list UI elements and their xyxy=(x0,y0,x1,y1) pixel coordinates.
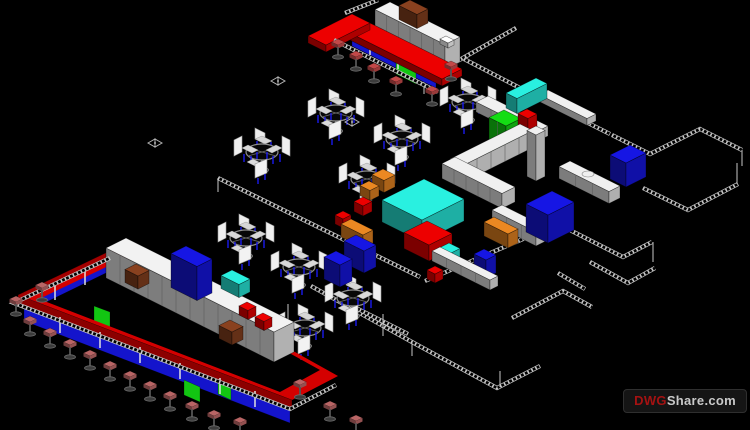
wall-far-right-mid xyxy=(643,184,738,210)
dining-table-set xyxy=(308,89,364,145)
cad-canvas[interactable]: DWGShare.com xyxy=(0,0,750,430)
isometric-cad-drawing xyxy=(0,0,750,430)
sink-basin xyxy=(582,171,594,177)
watermark-prefix: DWG xyxy=(634,393,667,408)
dining-table-set xyxy=(234,128,290,184)
dining-table-set xyxy=(374,115,430,171)
watermark: DWGShare.com xyxy=(623,389,747,413)
watermark-suffix: Share.com xyxy=(667,393,736,408)
kitchen-column xyxy=(527,131,536,182)
column-diamond-marker xyxy=(271,77,285,85)
dining-table-set xyxy=(218,214,274,270)
wall-bottom-right-l xyxy=(512,291,592,318)
column-diamond-marker xyxy=(148,139,162,147)
